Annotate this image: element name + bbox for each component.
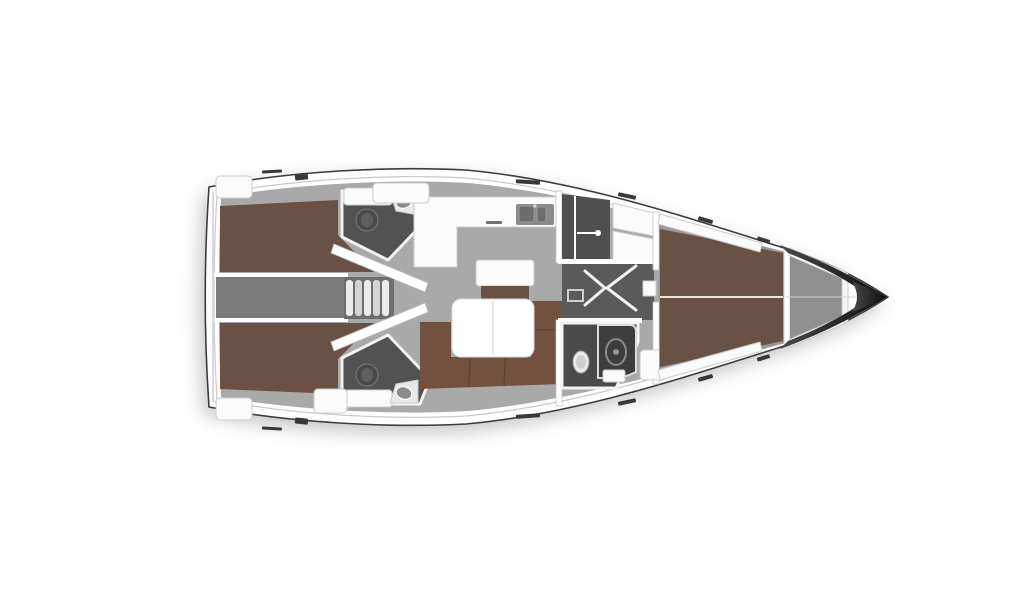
step [355,280,362,316]
faucet [533,204,536,207]
bow-section [780,245,887,349]
sink-basin [519,206,534,222]
toilet-bowl [361,213,373,227]
chart-sideboard-top [476,260,534,286]
saloon-bulkhead [556,191,562,263]
washbasin-unit [603,370,625,382]
locker-door-handle [595,230,601,236]
deck-locker [314,389,347,413]
vanity-counter [344,390,392,407]
deck-hatch [262,426,282,430]
toilet-bowl [576,355,586,369]
forward-cabin-bulkhead [653,212,659,270]
sink-basin [537,207,546,222]
hallway-floor [562,264,654,320]
deck-hatch [757,354,771,362]
yacht-floorplan-canvas [0,0,1024,600]
step [364,280,371,316]
step [346,280,353,316]
engine-corridor [216,277,346,318]
yacht-floorplan [0,0,1024,600]
wet-locker [562,194,610,262]
step [382,280,389,316]
deck-locker [216,398,252,420]
toilet-bowl [361,368,373,382]
shower-drain [613,349,619,355]
deck-hatch [618,398,636,406]
step [373,280,380,316]
deck-hatch [698,374,714,382]
deck-hatch [262,169,282,173]
stove-item [486,221,502,224]
bedside-unit [643,281,656,296]
companionway-steps [344,277,394,319]
deck-locker [216,176,252,198]
deck-locker [373,183,429,203]
hallway-wall-aft [558,259,656,264]
